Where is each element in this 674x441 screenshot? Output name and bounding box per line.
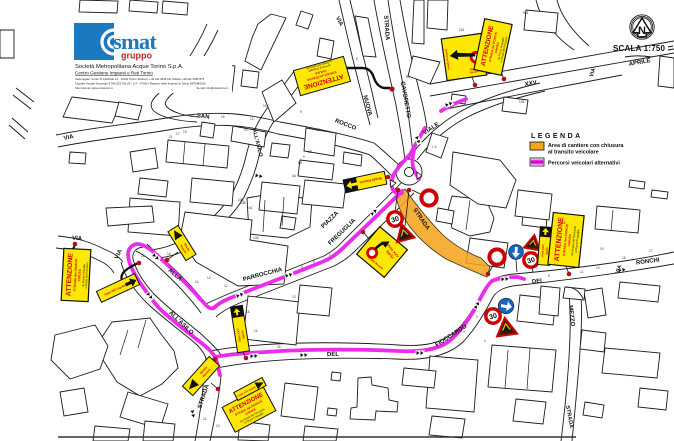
svg-text:Aprile: Aprile	[544, 247, 549, 256]
svg-text:CHIUSA: CHIUSA	[77, 268, 82, 281]
svg-text:9F: 9F	[316, 128, 320, 132]
svg-text:9: 9	[548, 274, 550, 278]
svg-text:12: 12	[250, 117, 254, 121]
svg-text:11: 11	[580, 270, 584, 274]
svg-text:12: 12	[224, 284, 228, 288]
svg-text:DEL: DEL	[327, 352, 340, 358]
svg-text:Società Metropolitana Acque To: Società Metropolitana Acque Torino S.p.A…	[75, 64, 184, 70]
svg-text:193: 193	[519, 100, 525, 104]
svg-text:216: 216	[459, 28, 465, 32]
svg-text:21: 21	[169, 135, 173, 139]
svg-text:1 3: 1 3	[432, 145, 437, 149]
svg-text:4: 4	[301, 265, 303, 269]
svg-text:al transito veicolare: al transito veicolare	[548, 150, 599, 156]
svg-text:6: 6	[313, 260, 315, 264]
svg-text:Area di cantiere con chiusura: Area di cantiere con chiusura	[548, 143, 624, 149]
svg-text:15: 15	[221, 115, 225, 119]
svg-text:2: 2	[329, 253, 331, 257]
svg-text:13: 13	[596, 266, 600, 270]
svg-text:16: 16	[277, 345, 281, 349]
svg-text:19: 19	[183, 130, 187, 134]
svg-text:Centro Gestione Impianti e Ret: Centro Gestione Impianti e Reti Torino	[75, 71, 153, 76]
svg-text:Sede legale: Corso XI Febbraio: Sede legale: Corso XI Febbraio 14 - 1015…	[75, 77, 205, 81]
svg-text:6: 6	[356, 57, 358, 61]
svg-text:19: 19	[600, 247, 604, 251]
svg-text:4: 4	[484, 339, 486, 343]
svg-text:15: 15	[562, 221, 566, 225]
svg-text:Sito Internet: www.smatorino.: Sito Internet: www.smatorino.it	[75, 86, 113, 90]
svg-text:8B: 8B	[308, 150, 312, 154]
svg-text:gruppo: gruppo	[121, 51, 152, 61]
svg-text:9: 9	[303, 155, 305, 159]
svg-text:10: 10	[244, 128, 248, 132]
svg-text:VIA: VIA	[72, 236, 83, 243]
svg-text:12: 12	[203, 417, 207, 421]
svg-text:4: 4	[463, 330, 465, 334]
svg-text:18: 18	[141, 254, 145, 258]
svg-text:16: 16	[263, 104, 267, 108]
svg-text:10A: 10A	[253, 236, 260, 240]
svg-text:17: 17	[176, 132, 180, 136]
svg-text:10B: 10B	[240, 201, 246, 205]
svg-text:994: 994	[523, 11, 529, 15]
svg-text:16: 16	[246, 310, 250, 314]
svg-text:16: 16	[167, 252, 171, 256]
svg-text:14: 14	[195, 280, 199, 284]
svg-text:LEGENDA: LEGENDA	[531, 133, 583, 140]
svg-text:20: 20	[190, 114, 194, 118]
svg-text:8D: 8D	[298, 161, 303, 165]
svg-text:14: 14	[254, 329, 258, 333]
svg-text:83: 83	[406, 75, 410, 79]
svg-text:12: 12	[207, 276, 211, 280]
svg-text:10: 10	[216, 424, 220, 428]
svg-text:9: 9	[300, 110, 302, 114]
svg-text:10C: 10C	[247, 206, 254, 210]
svg-text:N: N	[638, 25, 646, 37]
svg-text:DEI: DEI	[532, 279, 543, 286]
svg-text:Capitale Sociale Nominale € 34: Capitale Sociale Nominale € 345.533.761,…	[75, 82, 206, 86]
svg-text:Percorsi veicolari alternativi: Percorsi veicolari alternativi	[548, 161, 620, 167]
svg-text:17: 17	[649, 249, 653, 253]
svg-text:2: 2	[476, 315, 478, 319]
svg-text:SCALA 1:750: SCALA 1:750	[613, 44, 665, 53]
svg-text:E-mail: info@smatorino.it: E-mail: info@smatorino.it	[197, 86, 229, 90]
svg-text:15: 15	[622, 256, 626, 260]
svg-text:12: 12	[292, 295, 296, 299]
